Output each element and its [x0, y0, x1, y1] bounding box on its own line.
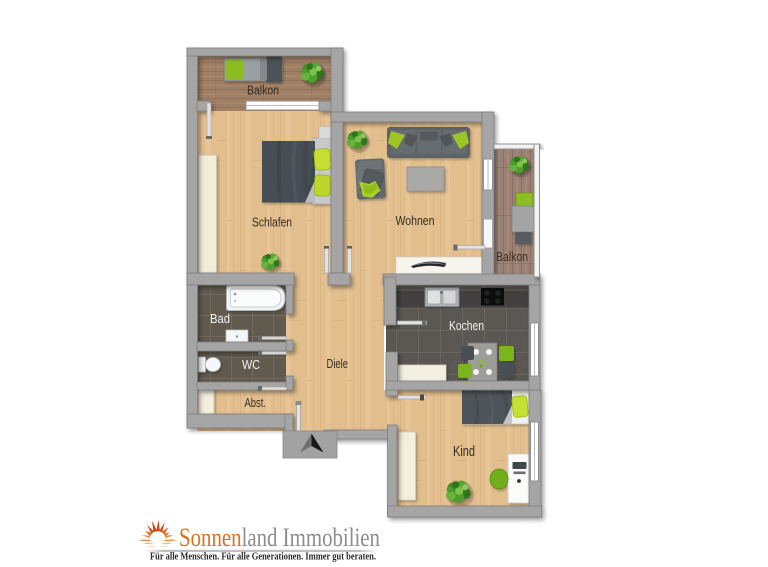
svg-text:Für alle Menschen. Für alle Ge: Für alle Menschen. Für alle Generationen…	[150, 552, 376, 563]
svg-text:Sonnenland Immobilien: Sonnenland Immobilien	[179, 523, 380, 552]
svg-text:Diele: Diele	[327, 356, 349, 371]
svg-text:Schlafen: Schlafen	[252, 215, 292, 230]
svg-text:Wohnen: Wohnen	[396, 213, 435, 228]
svg-text:Balkon: Balkon	[496, 249, 528, 264]
svg-text:Bad: Bad	[210, 311, 230, 326]
svg-text:Balkon: Balkon	[247, 83, 279, 98]
svg-text:Abst.: Abst.	[245, 395, 267, 410]
svg-text:Kochen: Kochen	[449, 318, 484, 333]
svg-text:Kind: Kind	[453, 444, 475, 460]
svg-text:WC: WC	[242, 357, 260, 372]
